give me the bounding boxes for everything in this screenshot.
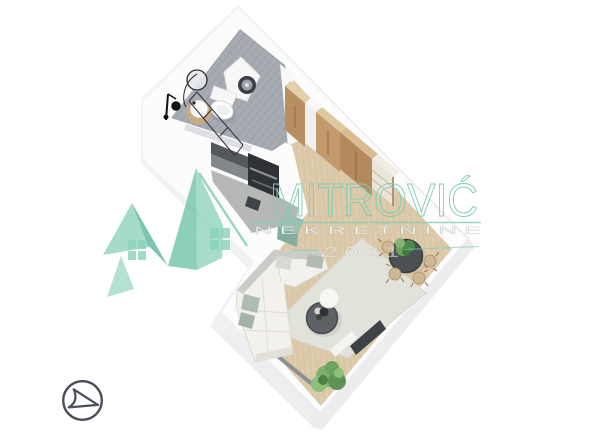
svg-text:2 0 2 1: 2 0 2 1 [324, 244, 399, 261]
svg-text:N E K R E T N I N E: N E K R E T N I N E [254, 225, 481, 237]
svg-text:MITROVIĆ: MITROVIĆ [270, 174, 478, 226]
